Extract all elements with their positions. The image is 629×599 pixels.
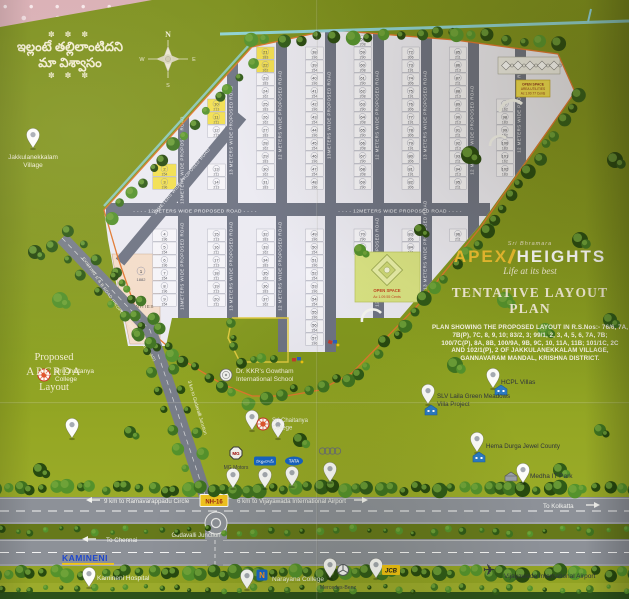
highway-label: 9 km to Ramavarappadu Circle — [104, 498, 190, 505]
map-pin-icon — [324, 462, 337, 482]
svg-text:96: 96 — [456, 231, 461, 236]
svg-text:32: 32 — [263, 231, 268, 236]
svg-text:162: 162 — [262, 250, 268, 254]
svg-text:28: 28 — [263, 140, 268, 145]
svg-text:36: 36 — [263, 283, 268, 288]
svg-text:TATA: TATA — [289, 459, 299, 464]
svg-text:290: 290 — [360, 55, 366, 59]
svg-text:59: 59 — [360, 49, 365, 54]
svg-text:162: 162 — [262, 68, 268, 72]
svg-text:16: 16 — [214, 244, 219, 249]
svg-text:35: 35 — [263, 270, 268, 275]
brand-logo: APEX HEIGHTS — [430, 247, 629, 266]
svg-text:196: 196 — [311, 159, 317, 163]
svg-text:196: 196 — [311, 107, 317, 111]
building-icon — [425, 405, 437, 415]
svg-text:95: 95 — [456, 179, 461, 184]
svg-text:52: 52 — [312, 270, 317, 275]
svg-text:61: 61 — [360, 75, 365, 80]
desc-line: AND 102/1(P), 2 OF JAKKULANEKKALAM VILLA… — [430, 347, 629, 355]
svg-text:38: 38 — [312, 49, 317, 54]
svg-text:154: 154 — [311, 276, 317, 280]
svg-text:19: 19 — [214, 283, 219, 288]
svg-text:290: 290 — [360, 159, 366, 163]
svg-text:89: 89 — [456, 101, 461, 106]
svg-text:25: 25 — [263, 101, 268, 106]
svg-text:Ac 1.09.55 Cents: Ac 1.09.55 Cents — [373, 295, 401, 299]
svg-text:162: 162 — [262, 146, 268, 150]
nh16-highway: 9 km to Ramavarappadu CircleNH-166 km to… — [0, 495, 629, 599]
svg-text:213: 213 — [213, 289, 219, 293]
desc-line: 100/7C(P), 8A, 8B, 100/9A, 9B, 9C, 10, 1… — [430, 340, 629, 348]
svg-text:196: 196 — [311, 185, 317, 189]
landmark-label: Medha IT Park — [530, 473, 573, 480]
svg-text:56: 56 — [312, 322, 317, 327]
svg-text:213: 213 — [213, 263, 219, 267]
kamineni-logo-icon: KAMINENI — [62, 553, 108, 563]
svg-text:211: 211 — [214, 250, 220, 254]
landmark-label: Hema Durga Jewel County — [486, 443, 561, 450]
svg-text:183: 183 — [262, 263, 268, 267]
svg-text:15: 15 — [214, 231, 219, 236]
svg-text:211: 211 — [455, 55, 461, 59]
svg-text:191: 191 — [408, 94, 414, 98]
svg-text:S: S — [166, 83, 170, 89]
svg-text:99: 99 — [503, 127, 508, 132]
svg-text:81: 81 — [408, 166, 413, 171]
svg-text:154: 154 — [162, 250, 168, 254]
svg-text:101: 101 — [502, 153, 509, 158]
landmark-label: Jakkulanekkalam — [8, 154, 58, 161]
svg-text:183: 183 — [262, 159, 268, 163]
road-label: 13METERS WIDE PROPOSED ROAD — [327, 71, 332, 159]
svg-text:20: 20 — [214, 296, 219, 301]
open-space-label: OPEN SPACE — [373, 288, 400, 293]
svg-text:73: 73 — [408, 62, 413, 67]
svg-text:162: 162 — [262, 302, 268, 306]
svg-text:213: 213 — [455, 172, 461, 176]
svg-text:290: 290 — [360, 81, 366, 85]
svg-text:74: 74 — [408, 75, 413, 80]
highway-label: To Kolkatta — [543, 503, 574, 510]
svg-text:183: 183 — [502, 172, 508, 176]
road-label: 12 METERS WIDE PROPOSED ROAD — [278, 221, 283, 310]
svg-text:208: 208 — [360, 146, 366, 150]
svg-text:23: 23 — [263, 75, 268, 80]
svg-text:1882: 1882 — [137, 277, 147, 282]
sri-chaitanya-college-center: Sri ChaitanyaCollege — [246, 410, 309, 432]
svg-text:290: 290 — [360, 107, 366, 111]
svg-text:211: 211 — [214, 302, 220, 306]
svg-text:213: 213 — [455, 120, 461, 124]
playground-icon — [292, 358, 296, 361]
svg-text:83: 83 — [408, 231, 413, 236]
road-label: 13 METERS WIDE PROPOSED ROAD — [229, 221, 234, 310]
svg-text:211: 211 — [455, 107, 461, 111]
svg-text:191: 191 — [408, 146, 414, 150]
svg-text:213: 213 — [455, 94, 461, 98]
svg-text:191: 191 — [408, 120, 414, 124]
svg-text:191: 191 — [408, 68, 414, 72]
svg-text:102: 102 — [502, 166, 509, 171]
map-pin-icon — [487, 368, 500, 388]
svg-text:162: 162 — [502, 159, 508, 163]
svg-text:208: 208 — [360, 120, 366, 124]
svg-text:154: 154 — [311, 302, 317, 306]
svg-text:211: 211 — [455, 185, 461, 189]
road-label: - - - - 12METERS WIDE PROPOSED ROAD - - … — [133, 208, 257, 214]
highway-label: 6 km to Vijayawada International Airport — [237, 498, 346, 505]
svg-text:76: 76 — [408, 101, 413, 106]
svg-text:196: 196 — [311, 133, 317, 137]
svg-text:84: 84 — [408, 244, 413, 249]
svg-text:30: 30 — [263, 166, 268, 171]
landmark-label: SLV Laila Green Meadows — [437, 393, 510, 400]
svg-text:306: 306 — [408, 185, 414, 189]
landmark-label: Sri Chaitanya — [272, 418, 309, 424]
landmark-label: Vijayawada International Airport — [504, 573, 595, 580]
landmark-label: College — [272, 426, 293, 432]
svg-text:49: 49 — [312, 231, 317, 236]
svg-text:162: 162 — [262, 276, 268, 280]
svg-text:213: 213 — [455, 68, 461, 72]
brand-rest: HEIGHTS — [517, 247, 607, 266]
svg-text:154: 154 — [311, 328, 317, 332]
svg-text:85: 85 — [456, 49, 461, 54]
brochure-photo: 2154319641965154619671548196915410213112… — [0, 0, 629, 599]
svg-text:183: 183 — [502, 146, 508, 150]
svg-text:OPEN SPACE: OPEN SPACE — [522, 83, 545, 87]
svg-text:E: E — [192, 57, 196, 63]
svg-text:31: 31 — [263, 179, 268, 184]
ornament-icon: ✽ ✽ ✽ — [6, 30, 134, 39]
svg-text:13: 13 — [214, 166, 219, 171]
svg-text:154: 154 — [311, 120, 317, 124]
svg-text:W: W — [139, 57, 145, 63]
svg-text:24: 24 — [263, 88, 268, 93]
road-label: 13METERS WIDE PROPOSED ROAD — [180, 222, 185, 310]
svg-text:306: 306 — [408, 237, 414, 241]
landmark-label: Dr. KKR's Gowtham — [236, 368, 294, 375]
svg-text:183: 183 — [262, 237, 268, 241]
svg-text:213: 213 — [213, 237, 219, 241]
svg-text:69: 69 — [360, 179, 365, 184]
hema-durga-jewel-county: Hema Durga Jewel County — [471, 432, 561, 462]
map-pin-icon — [471, 432, 484, 452]
landmark-label: HCPL Villas — [501, 379, 536, 386]
svg-text:290: 290 — [360, 185, 366, 189]
svg-text:Ac 1.00.77 Cents: Ac 1.00.77 Cents — [521, 92, 546, 96]
map-pin-icon — [27, 128, 40, 148]
svg-text:MG: MG — [232, 451, 240, 456]
telugu-slogan: ✽ ✽ ✽ ఇల్లంటే తల్లిలాంటిదని మా విశ్వాసం … — [6, 30, 134, 80]
desc-line: GANNAVARAM MANDAL, KRISHNA DISTRICT. — [430, 355, 629, 363]
layout-brochure: 2154319641965154619671548196915410213112… — [0, 0, 629, 599]
svg-text:70: 70 — [360, 231, 365, 236]
svg-text:100: 100 — [502, 140, 509, 145]
svg-text:183: 183 — [262, 185, 268, 189]
svg-text:183: 183 — [262, 289, 268, 293]
svg-text:154: 154 — [311, 94, 317, 98]
apcrda-label: Proposed APCRDA Layout — [14, 350, 94, 395]
map-pin-icon — [422, 384, 435, 404]
map-pin-icon — [246, 410, 259, 430]
svg-text:29: 29 — [263, 153, 268, 158]
svg-text:208: 208 — [360, 172, 366, 176]
svg-text:208: 208 — [360, 42, 366, 46]
svg-text:66: 66 — [360, 140, 365, 145]
svg-text:196: 196 — [162, 263, 168, 267]
svg-text:306: 306 — [408, 107, 414, 111]
brand-accent: APEX — [454, 247, 508, 266]
svg-text:306: 306 — [408, 133, 414, 137]
svg-text:154: 154 — [311, 250, 317, 254]
svg-text:211: 211 — [455, 159, 461, 163]
svg-text:27: 27 — [263, 127, 268, 132]
svg-text:26: 26 — [263, 114, 268, 119]
svg-text:79: 79 — [408, 140, 413, 145]
svg-text:91: 91 — [456, 127, 461, 132]
svg-text:162: 162 — [502, 107, 508, 111]
svg-text:65: 65 — [360, 127, 365, 132]
svg-text:196: 196 — [162, 289, 168, 293]
svg-text:154: 154 — [311, 146, 317, 150]
road-label: 12 METERS WIDE PROPOSED ROAD — [517, 63, 522, 152]
svg-text:62: 62 — [360, 88, 365, 93]
svg-text:12: 12 — [214, 127, 219, 132]
hcpl-villas: HCPL Villas — [487, 368, 537, 395]
svg-text:53: 53 — [312, 283, 317, 288]
svg-text:AREA UTILITIES: AREA UTILITIES — [521, 87, 545, 91]
road-label: 13METERS WIDE PROPOSED ROAD — [180, 116, 185, 204]
svg-text:77: 77 — [408, 114, 413, 119]
svg-text:162: 162 — [262, 172, 268, 176]
brand-tagline: Life at its best — [430, 267, 629, 277]
svg-text:290: 290 — [360, 237, 366, 241]
svg-text:154: 154 — [162, 276, 168, 280]
compass-rose-icon: NSWE — [139, 30, 196, 89]
plan-description: PLAN SHOWING THE PROPOSED LAYOUT IN R.S.… — [430, 324, 629, 363]
svg-text:208: 208 — [360, 68, 366, 72]
svg-text:46: 46 — [312, 153, 317, 158]
hut-icon — [505, 472, 517, 481]
svg-text:154: 154 — [311, 68, 317, 72]
svg-text:211: 211 — [455, 133, 461, 137]
svg-text:306: 306 — [408, 81, 414, 85]
apcrda-line: Layout — [14, 380, 94, 395]
svg-text:44: 44 — [312, 127, 317, 132]
svg-text:80: 80 — [408, 153, 413, 158]
landmark-label: Mercedes-Benz — [320, 585, 357, 591]
svg-text:154: 154 — [311, 172, 317, 176]
landmark-label: Narayana College — [272, 576, 324, 583]
svg-text:196: 196 — [311, 289, 317, 293]
svg-text:94: 94 — [456, 166, 461, 171]
svg-text:JCB: JCB — [385, 568, 398, 574]
svg-text:93: 93 — [456, 153, 461, 158]
svg-text:183: 183 — [262, 107, 268, 111]
jakkulanekkalam-village: JakkulanekkalamVillage — [8, 128, 58, 169]
apcrda-line: Proposed — [14, 350, 94, 365]
svg-text:33: 33 — [263, 244, 268, 249]
svg-text:50: 50 — [312, 244, 317, 249]
road-label: 12 METERS WIDE PROPOSED ROAD — [375, 70, 380, 159]
svg-text:N: N — [259, 571, 265, 580]
ornament-icon: ✽ ✽ ✽ — [6, 71, 134, 80]
svg-text:86: 86 — [456, 62, 461, 67]
svg-text:34: 34 — [263, 257, 268, 262]
road-label: - - - - 12METERS WIDE PROPOSED ROAD - - … — [338, 208, 462, 214]
svg-text:14: 14 — [214, 179, 219, 184]
svg-text:42: 42 — [312, 101, 317, 106]
svg-text:37: 37 — [263, 296, 268, 301]
svg-text:213: 213 — [455, 146, 461, 150]
desc-line: PLAN SHOWING THE PROPOSED LAYOUT IN R.S.… — [430, 324, 629, 332]
slogan-line-1: ఇల్లంటే తల్లిలాంటిదని — [6, 39, 134, 55]
airplane-icon: ✈ — [483, 562, 496, 579]
landmark-label: International School — [236, 376, 294, 383]
svg-text:51: 51 — [312, 257, 317, 262]
svg-text:191: 191 — [408, 172, 414, 176]
svg-text:75: 75 — [408, 88, 413, 93]
landmark-label: Kamineni Hospital — [97, 575, 150, 582]
svg-text:211: 211 — [214, 276, 220, 280]
landmark-label: Villa Project — [437, 401, 470, 408]
svg-text:211: 211 — [214, 120, 220, 124]
svg-text:183: 183 — [262, 55, 268, 59]
svg-text:208: 208 — [360, 94, 366, 98]
svg-text:196: 196 — [311, 315, 317, 319]
svg-text:196: 196 — [162, 185, 168, 189]
svg-text:17: 17 — [214, 257, 219, 262]
svg-text:78: 78 — [408, 127, 413, 132]
brand-slash-icon — [508, 249, 516, 264]
svg-text:60: 60 — [360, 62, 365, 67]
svg-text:183: 183 — [502, 120, 508, 124]
mg-motors: MGMG Motors — [224, 447, 249, 490]
svg-text:87: 87 — [456, 75, 461, 80]
svg-text:45: 45 — [312, 140, 317, 145]
road-label: 13 METERS WIDE PROPOSED ROAD — [423, 70, 428, 159]
svg-text:98: 98 — [503, 114, 508, 119]
svg-text:N: N — [165, 30, 171, 39]
svg-text:162: 162 — [262, 94, 268, 98]
svg-text:63: 63 — [360, 101, 365, 106]
svg-text:72: 72 — [408, 49, 413, 54]
svg-text:213: 213 — [213, 185, 219, 189]
svg-text:47: 47 — [312, 166, 317, 171]
svg-text:196: 196 — [162, 237, 168, 241]
svg-text:54: 54 — [312, 296, 317, 301]
svg-text:57: 57 — [312, 335, 317, 340]
svg-text:162: 162 — [262, 120, 268, 124]
svg-text:154: 154 — [162, 302, 168, 306]
svg-text:41: 41 — [312, 88, 317, 93]
apcrda-line: APCRDA — [14, 365, 94, 380]
map-pin-icon — [517, 463, 530, 483]
svg-text:40: 40 — [312, 75, 317, 80]
svg-text:213: 213 — [213, 107, 219, 111]
branding-block: Sri Bhramara APEX HEIGHTS Life at its be… — [430, 241, 629, 363]
svg-text:18: 18 — [214, 270, 219, 275]
svg-text:211: 211 — [455, 81, 461, 85]
svg-text:196: 196 — [311, 81, 317, 85]
svg-text:48: 48 — [312, 179, 317, 184]
slogan-line-2: మా విశ్వాసం — [6, 55, 134, 71]
svg-text:183: 183 — [262, 81, 268, 85]
svg-text:39: 39 — [312, 62, 317, 67]
svg-text:10: 10 — [214, 101, 219, 106]
road-label: 13 METERS WIDE PROPOSED ROAD — [229, 85, 234, 174]
audi-showroom — [319, 448, 340, 484]
svg-text:196: 196 — [311, 341, 317, 345]
svg-text:183: 183 — [262, 133, 268, 137]
landmark-label: Village — [23, 162, 43, 169]
svg-text:68: 68 — [360, 166, 365, 171]
svg-text:43: 43 — [312, 114, 317, 119]
svg-text:92: 92 — [456, 140, 461, 145]
road-label: 12 METERS WIDE PROPOSED ROAD — [278, 70, 283, 159]
svg-text:196: 196 — [311, 237, 317, 241]
svg-text:211: 211 — [214, 172, 220, 176]
svg-text:196: 196 — [311, 263, 317, 267]
map-pin-icon — [66, 418, 79, 438]
svg-text:290: 290 — [360, 133, 366, 137]
svg-text:82: 82 — [408, 179, 413, 184]
svg-text:154: 154 — [162, 172, 168, 176]
landmark-label: MG Motors — [224, 465, 249, 471]
svg-text:55: 55 — [312, 309, 317, 314]
svg-text:22: 22 — [263, 62, 268, 67]
highway-label: To Chennai — [106, 537, 137, 544]
plan-title: TENTATIVE LAYOUT PLAN — [430, 285, 629, 317]
svg-text:306: 306 — [408, 55, 414, 59]
desc-line: 7B(P), 7C, 8, 9, 10; 83/2, 3; 99/1, 2, 3… — [430, 332, 629, 340]
svg-text:88: 88 — [456, 88, 461, 93]
svg-text:21: 21 — [263, 49, 268, 54]
svg-text:67: 67 — [360, 153, 365, 158]
svg-text:196: 196 — [311, 55, 317, 59]
svg-text:64: 64 — [360, 114, 365, 119]
svg-text:306: 306 — [408, 159, 414, 163]
svg-text:NH-16: NH-16 — [205, 500, 223, 506]
svg-text:90: 90 — [456, 114, 461, 119]
